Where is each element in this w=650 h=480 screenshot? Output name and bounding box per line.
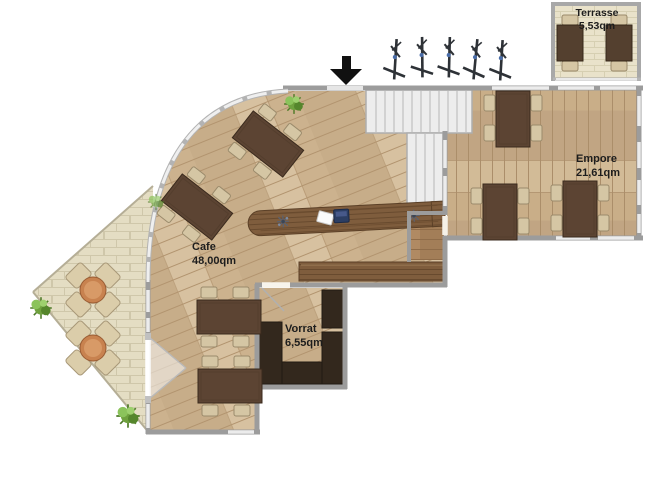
room-area: 48,00qm (192, 255, 236, 269)
outdoor-plant-icon (487, 39, 518, 83)
room-name: Empore (576, 153, 620, 167)
cash-register-icon (334, 209, 350, 223)
back-counter (299, 262, 445, 281)
outdoor-plant-icon (381, 38, 412, 82)
entrance-planting (381, 36, 518, 83)
room-name: Terrasse (553, 7, 641, 20)
room-area: 21,61qm (576, 167, 620, 181)
room-name: Vorrat (285, 323, 323, 337)
outdoor-plant-icon (436, 36, 466, 79)
terrasse-room-label: Terrasse 5,53qm (553, 7, 641, 33)
floor-plan-svg (0, 0, 650, 480)
cafe-room-label: Cafe 48,00qm (192, 241, 236, 269)
floor-plan: Cafe 48,00qm Empore 21,61qm Vorrat 6,55q… (0, 0, 650, 480)
vorrat-room-label: Vorrat 6,55qm (285, 323, 323, 351)
patio-paving (33, 186, 153, 434)
outdoor-plant-icon (410, 36, 438, 79)
room-name: Cafe (192, 241, 236, 255)
room-area: 5,53qm (553, 20, 641, 33)
entrance-arrow-icon (330, 56, 362, 85)
room-area: 6,55qm (285, 337, 323, 351)
empore-room-label: Empore 21,61qm (576, 153, 620, 181)
outdoor-plant-icon (461, 37, 493, 81)
flower-vase-icon (277, 215, 290, 228)
